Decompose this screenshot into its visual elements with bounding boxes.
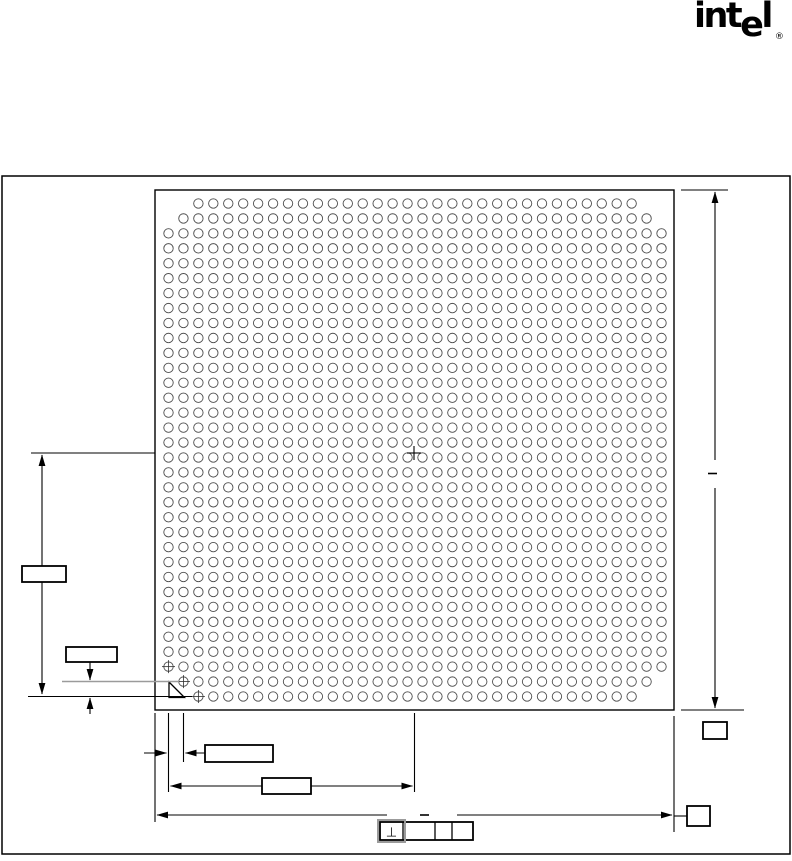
mechanical-drawing: ⊥	[0, 0, 792, 861]
width-dim-box	[687, 806, 710, 826]
vertical-pitch-dimension	[28, 647, 192, 714]
gdt-feature-control-frame: ⊥	[378, 820, 473, 842]
package-height-dimension	[681, 190, 744, 739]
edge-to-center-dim-box	[262, 778, 311, 794]
perpendicularity-icon: ⊥	[386, 826, 397, 841]
vertical-pitch-dim-box	[66, 647, 117, 662]
datasheet-page: intel®	[0, 0, 792, 861]
height-dim-box	[703, 722, 727, 739]
center-mark-icon	[407, 446, 421, 460]
extension-lines	[155, 713, 674, 832]
center-to-row-dim-box	[22, 566, 66, 582]
edge-to-center-dimension	[171, 778, 413, 794]
horizontal-pitch-dim-box	[205, 745, 273, 762]
a1-corner-chamfer-icon	[169, 682, 185, 698]
horizontal-pitch-dimension	[144, 745, 273, 762]
figure-border	[2, 176, 790, 854]
